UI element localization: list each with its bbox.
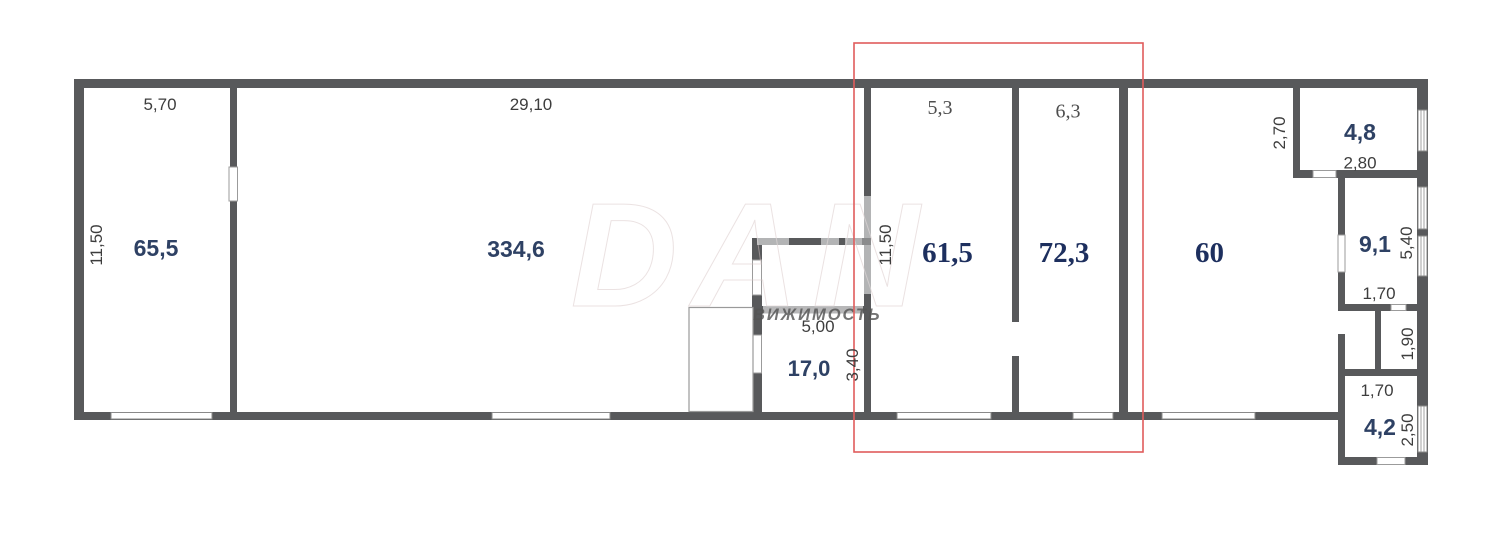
svg-text:4,8: 4,8 — [1344, 119, 1376, 145]
svg-text:65,5: 65,5 — [134, 235, 179, 261]
svg-text:11,50: 11,50 — [87, 224, 106, 265]
svg-text:2,70: 2,70 — [1270, 116, 1289, 149]
svg-text:1,70: 1,70 — [1360, 381, 1393, 400]
svg-text:11,50: 11,50 — [876, 224, 895, 265]
svg-text:6,3: 6,3 — [1056, 101, 1081, 123]
svg-text:4,2: 4,2 — [1364, 414, 1396, 440]
svg-text:334,6: 334,6 — [487, 236, 545, 262]
svg-text:17,0: 17,0 — [788, 356, 831, 381]
svg-text:72,3: 72,3 — [1039, 237, 1090, 269]
svg-text:2,80: 2,80 — [1343, 154, 1376, 173]
svg-text:3,40: 3,40 — [843, 348, 862, 381]
svg-text:1,90: 1,90 — [1398, 327, 1417, 360]
svg-text:1,70: 1,70 — [1362, 284, 1395, 303]
svg-text:5,00: 5,00 — [801, 317, 834, 336]
svg-text:5,40: 5,40 — [1397, 226, 1416, 259]
svg-text:5,70: 5,70 — [143, 95, 176, 114]
svg-text:9,1: 9,1 — [1359, 231, 1391, 257]
svg-text:60: 60 — [1195, 237, 1224, 269]
svg-text:61,5: 61,5 — [922, 237, 973, 269]
svg-text:2,50: 2,50 — [1398, 413, 1417, 446]
svg-text:5,3: 5,3 — [928, 97, 953, 119]
svg-text:29,10: 29,10 — [510, 95, 553, 114]
